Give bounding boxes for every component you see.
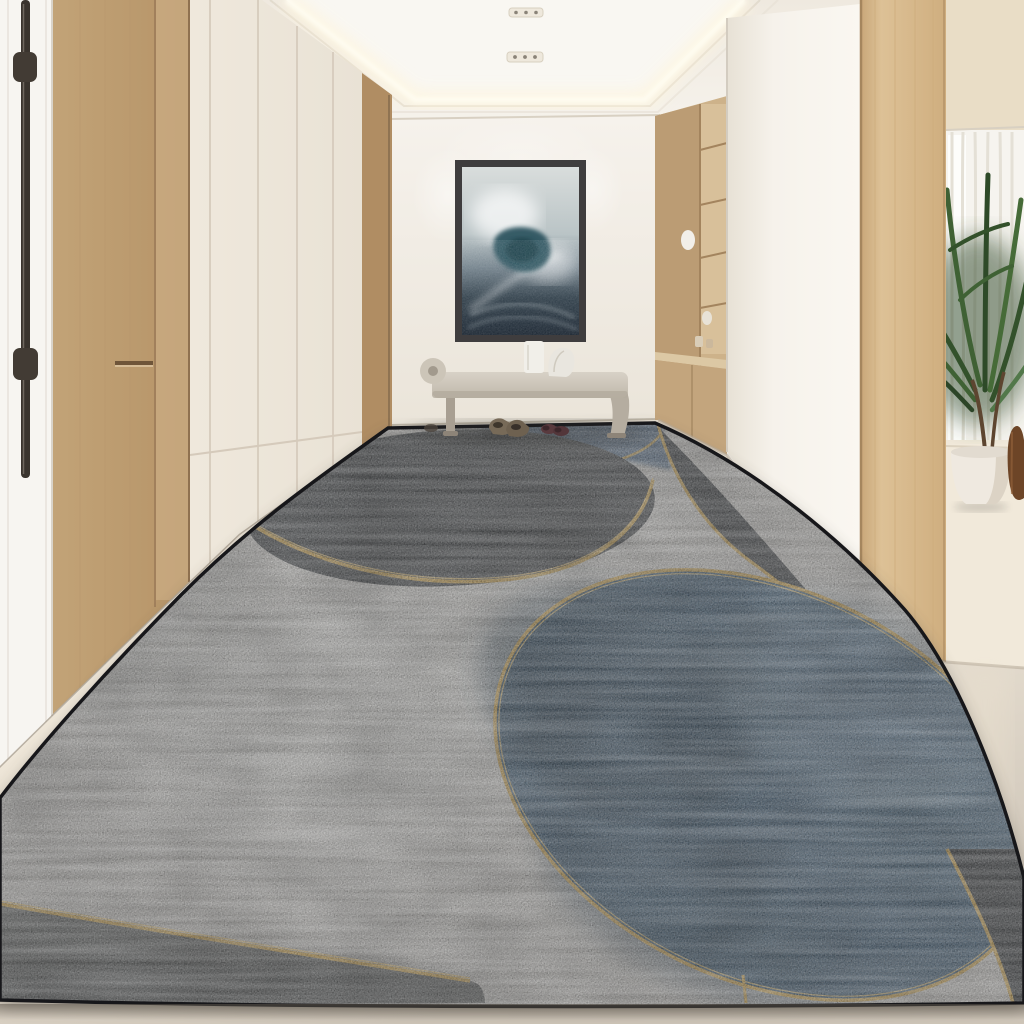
spot-dot xyxy=(534,11,538,15)
small-dark-object xyxy=(424,424,438,432)
art-speckle xyxy=(462,240,579,335)
decor-object xyxy=(702,311,712,325)
spot-dot xyxy=(523,55,527,59)
wood-shelf-niche xyxy=(655,96,727,455)
oak-pillar xyxy=(860,0,946,662)
scene-canvas xyxy=(0,0,1024,1024)
spot-dot xyxy=(513,55,517,59)
shoe-toe xyxy=(555,428,562,433)
handle-bracket xyxy=(13,348,38,380)
white-figurine xyxy=(681,230,695,250)
palm-frond xyxy=(985,175,988,390)
bench-foot xyxy=(443,431,458,436)
pot-rim xyxy=(951,446,1011,458)
shoe-opening xyxy=(493,422,503,428)
abstract-framed-artwork xyxy=(455,160,586,342)
hallway-photo xyxy=(0,0,1024,1024)
spot-dot xyxy=(533,55,537,59)
bench-foot xyxy=(607,433,626,438)
pillar-grain xyxy=(914,0,915,648)
bench-seat-edge xyxy=(432,391,628,398)
decor-object xyxy=(706,339,713,348)
spot-dot xyxy=(524,11,528,15)
pillar-grain xyxy=(874,0,875,640)
rug-front-shadow xyxy=(0,1004,1024,1020)
far-upper-wall xyxy=(946,0,1024,135)
pillar-grain xyxy=(932,0,933,652)
spot-dot xyxy=(514,11,518,15)
doorway-wood-trim xyxy=(362,73,392,447)
shoe-toe xyxy=(543,426,550,431)
pillar-grain xyxy=(894,0,895,644)
wardrobe-stile xyxy=(155,0,190,600)
white-vase xyxy=(524,341,544,373)
handle-bracket xyxy=(13,52,37,82)
decor-object xyxy=(695,336,703,347)
bench-scroll-center xyxy=(428,366,438,376)
shoe-opening xyxy=(511,424,521,430)
bench-leg xyxy=(446,394,455,434)
